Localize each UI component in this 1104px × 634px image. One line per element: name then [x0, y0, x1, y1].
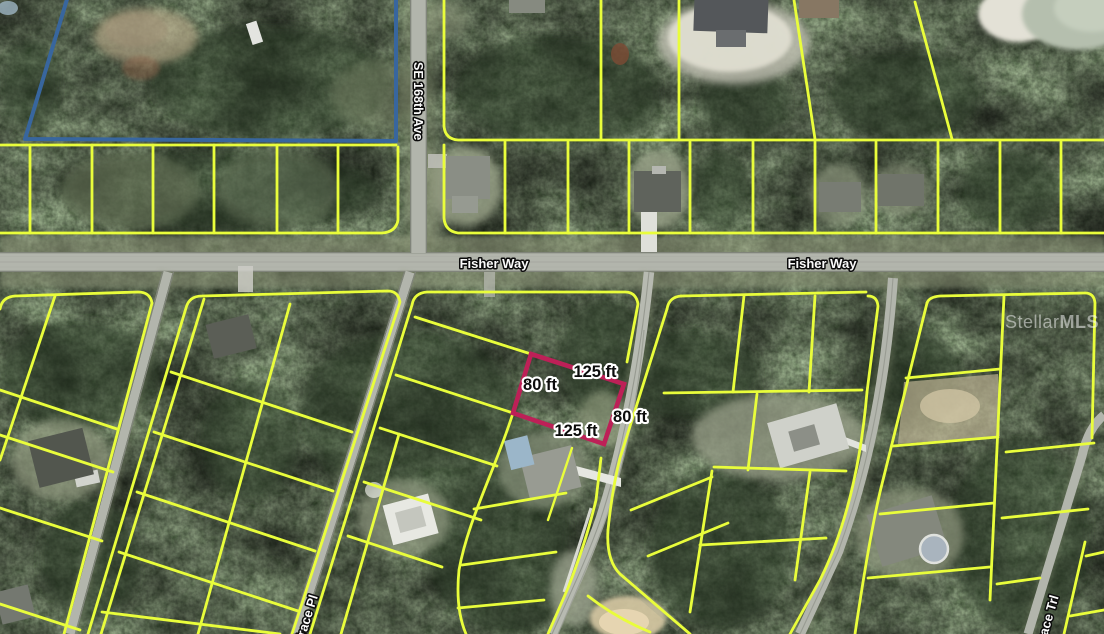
svg-text:80 ft: 80 ft: [613, 408, 647, 426]
svg-text:125 ft: 125 ft: [554, 422, 598, 440]
svg-text:StellarMLS: StellarMLS: [1005, 312, 1099, 332]
svg-text:80 ft: 80 ft: [523, 376, 557, 394]
svg-text:Fisher Way: Fisher Way: [460, 256, 530, 271]
svg-text:SE 168th Ave: SE 168th Ave: [411, 62, 425, 140]
svg-text:125 ft: 125 ft: [573, 363, 617, 381]
svg-text:Fisher Way: Fisher Way: [788, 256, 858, 271]
